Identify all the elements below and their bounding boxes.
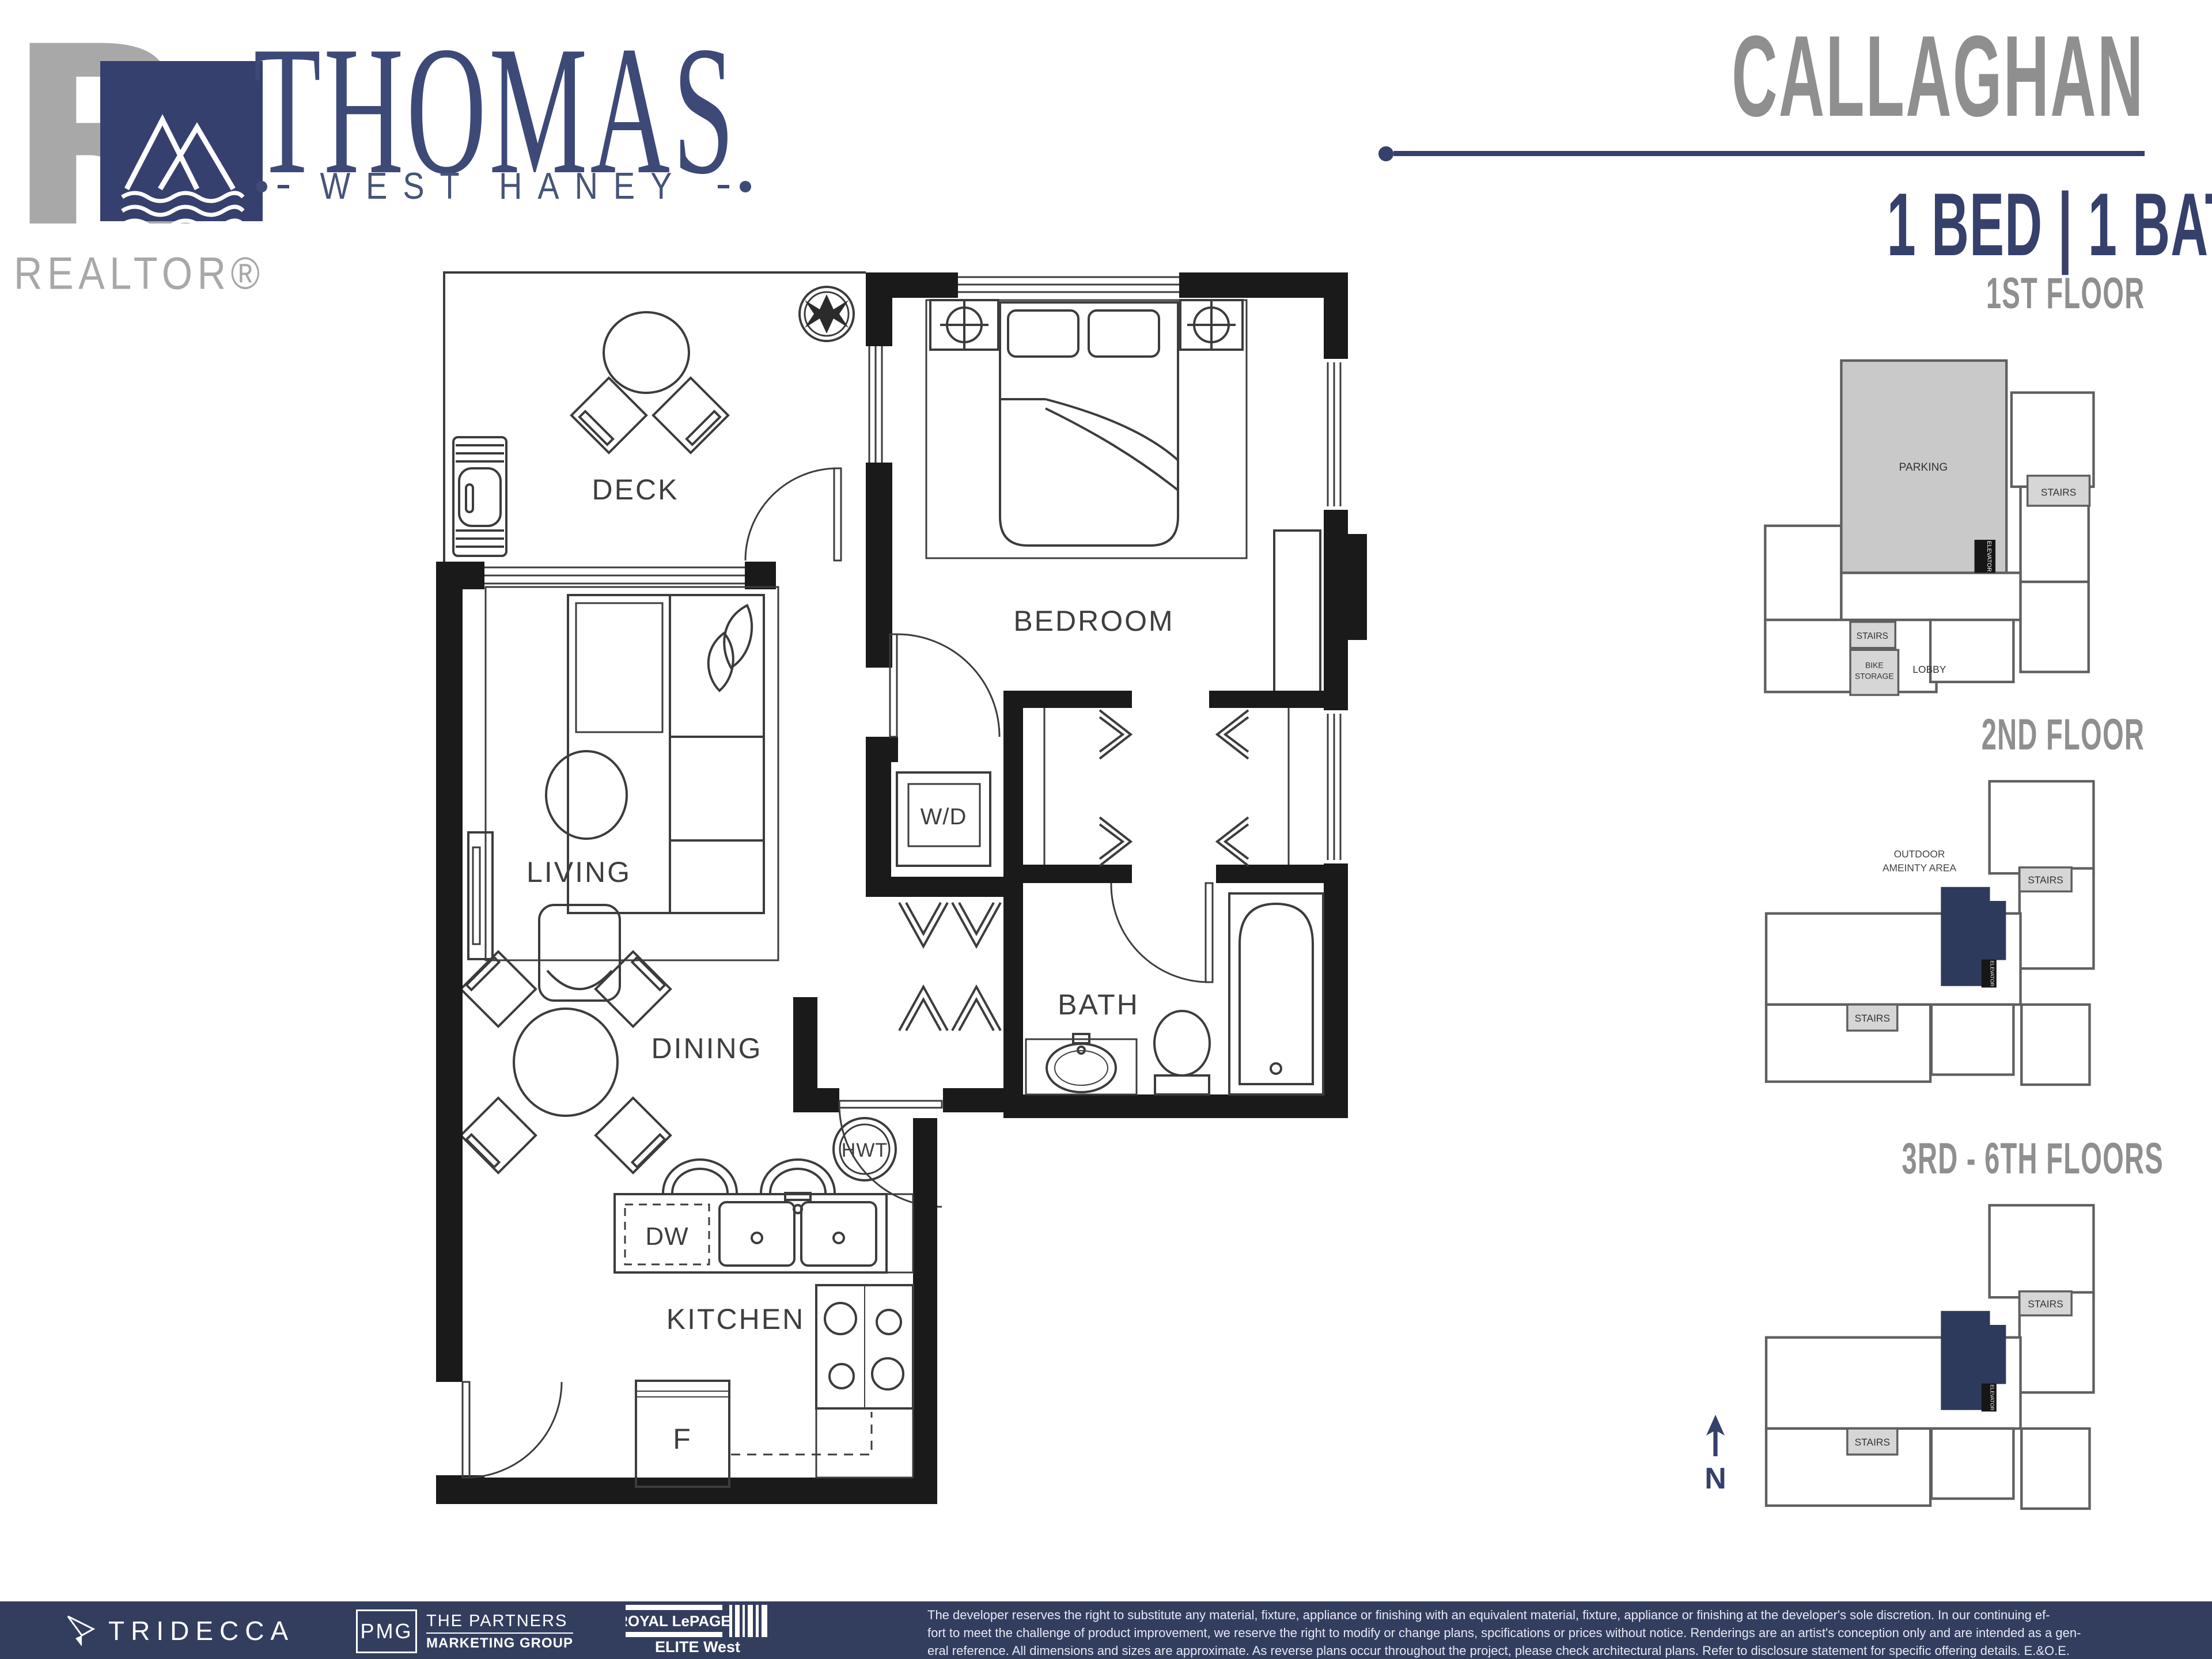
armchair	[539, 905, 620, 1001]
bar-stools	[663, 1160, 835, 1193]
lobby-label: LOBBY	[1912, 664, 1946, 675]
wall	[793, 1088, 839, 1112]
svg-text:STAIRS: STAIRS	[1855, 1436, 1890, 1448]
wall	[436, 1475, 484, 1504]
dining-label: DINING	[652, 1032, 763, 1065]
living-rug	[486, 587, 778, 960]
keyplan-title-1st: 1ST FLOOR	[1741, 268, 2145, 319]
hall-door-leaf	[839, 1101, 942, 1108]
bath-door-arc	[1111, 883, 1209, 982]
dining-chair	[596, 1098, 671, 1173]
parking-label: PARKING	[1899, 461, 1948, 474]
disclaimer-text: The developer reserves the right to subs…	[927, 1606, 2203, 1659]
royal-lepage-icon: ROYAL LePAGE	[626, 1605, 770, 1637]
disclaimer-line: fort to meet the challenge of product im…	[927, 1624, 2203, 1642]
tridecca-logo: TRIDECCA	[67, 1614, 294, 1647]
living-label: LIVING	[527, 856, 631, 888]
brand-subtitle-row: WEST HANEY	[256, 166, 751, 207]
keyplan-2nd-floor: OUTDOOR AMEINTY AREA ELEVATOR STAIRS STA…	[1751, 751, 2172, 1097]
unit-specs: 1 BED | 1 BATH | 618 SQ.FT.	[1887, 173, 2212, 276]
hwt-label: HWT	[842, 1139, 888, 1161]
dining-chair	[596, 952, 671, 1027]
deck-label: DECK	[592, 474, 679, 506]
stove	[816, 1285, 913, 1408]
svg-text:STORAGE: STORAGE	[1855, 672, 1894, 681]
tv	[468, 832, 493, 959]
wall	[436, 562, 463, 1382]
wall	[866, 467, 892, 668]
bed	[1000, 302, 1178, 546]
dining-chair	[461, 1098, 536, 1173]
coffee-table	[546, 751, 627, 839]
keyplan-3rd-6th-floors: ELEVATOR STAIRS STAIRS	[1751, 1175, 2172, 1521]
wall	[943, 1088, 1020, 1112]
north-arrow: N	[1692, 1412, 1738, 1499]
bedroom-label: BEDROOM	[1013, 605, 1174, 637]
wall	[1324, 863, 1348, 1118]
wd-label: W/D	[921, 804, 967, 829]
lamp-left	[940, 301, 988, 349]
svg-text:STAIRS: STAIRS	[2041, 487, 2076, 498]
fridge-label: F	[673, 1423, 692, 1455]
subtitle-dot-right	[740, 181, 751, 192]
svg-text:ELEVATOR: ELEVATOR	[1989, 961, 1995, 987]
svg-text:ELEVATOR: ELEVATOR	[1986, 541, 1992, 572]
wall	[1209, 691, 1324, 708]
wall	[1023, 865, 1132, 883]
subtitle-line-left	[278, 185, 289, 188]
lamp-right	[1187, 301, 1236, 349]
wall	[1324, 510, 1348, 710]
subtitle-line-right	[718, 185, 729, 188]
svg-text:OUTDOOR: OUTDOOR	[1894, 848, 1945, 859]
divider-window	[866, 340, 892, 468]
deck-door-arc	[745, 468, 838, 560]
counter	[816, 1408, 913, 1478]
sliding-door	[484, 567, 745, 584]
hall-closet-bifolds	[899, 903, 1001, 1031]
rule-line	[1393, 151, 2145, 156]
svg-text:ROYAL LePAGE: ROYAL LePAGE	[626, 1612, 731, 1630]
wall-notch	[1348, 534, 1367, 640]
kitchen-label: KITCHEN	[666, 1303, 805, 1335]
unit-rule	[1378, 151, 2145, 156]
upper-cabinet-dashed	[731, 1412, 872, 1455]
bedroom-door-arc	[897, 634, 999, 737]
bath-door-leaf	[1206, 883, 1213, 982]
deck-table	[604, 312, 689, 393]
pmg-logo: PMG THE PARTNERS MARKETING GROUP	[356, 1609, 573, 1653]
wall	[866, 877, 1003, 897]
wall	[484, 1478, 937, 1504]
royal-sub-label: ELITE West	[655, 1638, 740, 1656]
dining-chair	[461, 952, 536, 1027]
pmg-line1: THE PARTNERS	[426, 1612, 573, 1634]
brand-subtitle: WEST HANEY	[320, 165, 687, 208]
pmg-line2: MARKETING GROUP	[426, 1634, 573, 1652]
bathtub	[1229, 893, 1323, 1094]
flyer-page: R REALTOR® THOMAS WEST HANEY CALLAGHAN 1…	[0, 0, 2212, 1659]
plant	[709, 605, 752, 691]
dining-table	[514, 1009, 618, 1116]
wall	[1023, 691, 1132, 708]
svg-text:AMEINTY AREA: AMEINTY AREA	[1883, 862, 1957, 874]
toilet	[1154, 1011, 1210, 1094]
unit-header: CALLAGHAN 1 BED | 1 BATH | 618 SQ.FT.	[1378, 10, 2145, 276]
double-sink	[719, 1193, 876, 1266]
rule-dot	[1378, 146, 1393, 161]
wall	[1324, 272, 1348, 359]
wall	[913, 1118, 937, 1504]
disclaimer-line: The developer reserves the right to subs…	[927, 1606, 2203, 1624]
main-floorplan: DECK	[436, 264, 1367, 1524]
wall	[866, 272, 958, 298]
entry-door-leaf	[463, 1382, 469, 1478]
wall	[1020, 1094, 1348, 1118]
keyplan-1st-floor: PARKING STAIRS ELEVATOR STAIRS BIKE STOR…	[1751, 320, 2172, 706]
wall	[745, 562, 776, 589]
entry-door-arc	[466, 1382, 562, 1478]
dresser	[1274, 531, 1320, 695]
svg-text:STAIRS: STAIRS	[2028, 874, 2063, 886]
bath-label: BATH	[1058, 988, 1139, 1021]
svg-text:ELEVATOR: ELEVATOR	[1989, 1385, 1995, 1411]
bbq-grill	[453, 437, 506, 556]
vanity-sink	[1026, 1034, 1137, 1094]
svg-text:STAIRS: STAIRS	[2028, 1298, 2063, 1310]
pmg-box: PMG	[356, 1609, 417, 1653]
wall	[1216, 865, 1324, 883]
wall	[866, 737, 898, 762]
dw-label: DW	[645, 1222, 688, 1251]
north-label: N	[1705, 1462, 1726, 1495]
svg-text:BIKE: BIKE	[1865, 661, 1884, 670]
tridecca-icon	[67, 1614, 97, 1647]
deck-chair-left	[571, 378, 646, 453]
bedroom-top-window	[958, 277, 1179, 292]
unit-name: CALLAGHAN	[1732, 10, 2145, 143]
closet-bifolds	[1100, 710, 1248, 866]
closet-shelf-lines	[1044, 708, 1289, 865]
wall	[1179, 272, 1348, 298]
deck-door-leaf	[834, 468, 841, 560]
royal-lepage-logo: ROYAL LePAGE ELITE West	[626, 1605, 770, 1656]
elevator	[1975, 540, 1996, 573]
subtitle-dot-left	[256, 181, 267, 192]
disclaimer-line: eral reference. All dimensions and sizes…	[927, 1642, 2203, 1659]
realtor-label: REALTOR®	[14, 248, 266, 300]
svg-text:STAIRS: STAIRS	[1857, 631, 1888, 641]
wall	[866, 762, 891, 897]
fan-icon	[800, 287, 854, 341]
wall	[1003, 691, 1023, 1118]
svg-text:STAIRS: STAIRS	[1855, 1012, 1890, 1024]
realtor-logo: R	[12, 9, 265, 244]
